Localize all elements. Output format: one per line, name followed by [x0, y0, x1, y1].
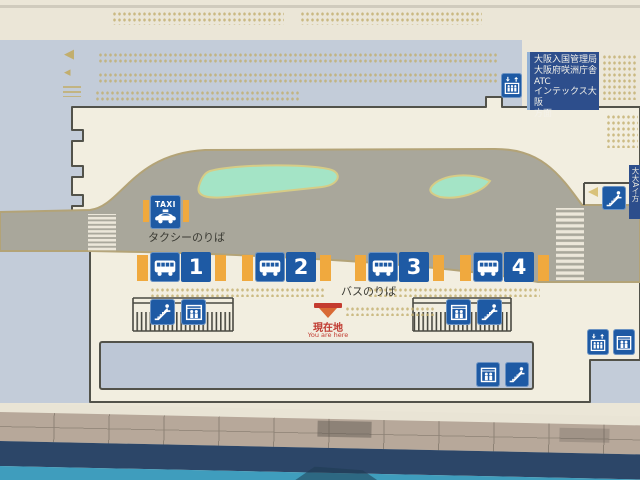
sign-bottom-frame [0, 403, 640, 480]
elevator-icon [613, 329, 635, 355]
elevator-icon [446, 299, 471, 325]
escalator-icon [150, 299, 175, 325]
braille-row [602, 54, 638, 100]
destination-sign-vertical: 大大Aイ方 [629, 165, 640, 219]
crosswalk [556, 208, 584, 280]
bus-area-label: バスのりば [341, 283, 396, 299]
map-panel: ◀ ◂ 大阪入国管理局 大阪府咲洲庁舎 ATC インテックス大阪 方面 大大Aイ… [0, 40, 640, 403]
bus-stop-number: 3 [399, 252, 429, 282]
destination-line: 大阪府咲洲庁舎 [534, 66, 598, 77]
destination-line: 方面 [534, 109, 598, 120]
destination-line: ATC [534, 77, 598, 88]
you-are-here-label-en: You are here [298, 331, 358, 339]
escalator-icon [505, 362, 529, 387]
bus-icon [473, 252, 503, 282]
frame-dark-tile [317, 421, 371, 438]
tactile-lines-icon [63, 86, 81, 97]
tactile-arrow-icon: ◂ [64, 66, 71, 79]
braille-row [606, 114, 638, 148]
braille-row [112, 11, 284, 25]
sign-frame-line [0, 5, 640, 8]
destination-line: インテックス大阪 [534, 87, 598, 109]
crosswalk [88, 214, 116, 252]
destination-line: 大阪入国管理局 [534, 55, 598, 66]
sign-top-strip [0, 0, 640, 40]
station-map-sign-photo: ◀ ◂ 大阪入国管理局 大阪府咲洲庁舎 ATC インテックス大阪 方面 大大Aイ… [0, 0, 640, 480]
bus-stop-number: 2 [286, 252, 316, 282]
elevator-icon [181, 299, 206, 325]
bus-icon [368, 252, 398, 282]
braille-row [95, 90, 300, 101]
tactile-arrow-icon: ◀ [64, 48, 74, 61]
bus-icon [150, 252, 180, 282]
taxi-stand-label: タクシーのりば [148, 229, 225, 245]
bus-stop-number: 1 [181, 252, 211, 282]
bench-post [143, 200, 149, 222]
lower-concourse [100, 342, 533, 389]
elevator-updown-icon [501, 73, 522, 98]
braille-row [345, 306, 435, 316]
braille-row [150, 287, 325, 297]
bus-stop-number: 4 [504, 252, 534, 282]
taxi-sign-label: TAXI [155, 200, 176, 209]
frame-dark-tile [559, 428, 609, 443]
elevator-updown-icon [587, 329, 609, 355]
escalator-icon [602, 186, 626, 210]
escalator-icon [477, 299, 502, 325]
taxi-icon: TAXI [150, 195, 181, 229]
elevator-icon [476, 362, 500, 387]
braille-row [300, 11, 482, 25]
braille-row [98, 52, 498, 65]
braille-row [98, 72, 498, 85]
bus-icon [255, 252, 285, 282]
bench-post [183, 200, 189, 222]
destination-sign: 大阪入国管理局 大阪府咲洲庁舎 ATC インテックス大阪 方面 [527, 52, 599, 110]
